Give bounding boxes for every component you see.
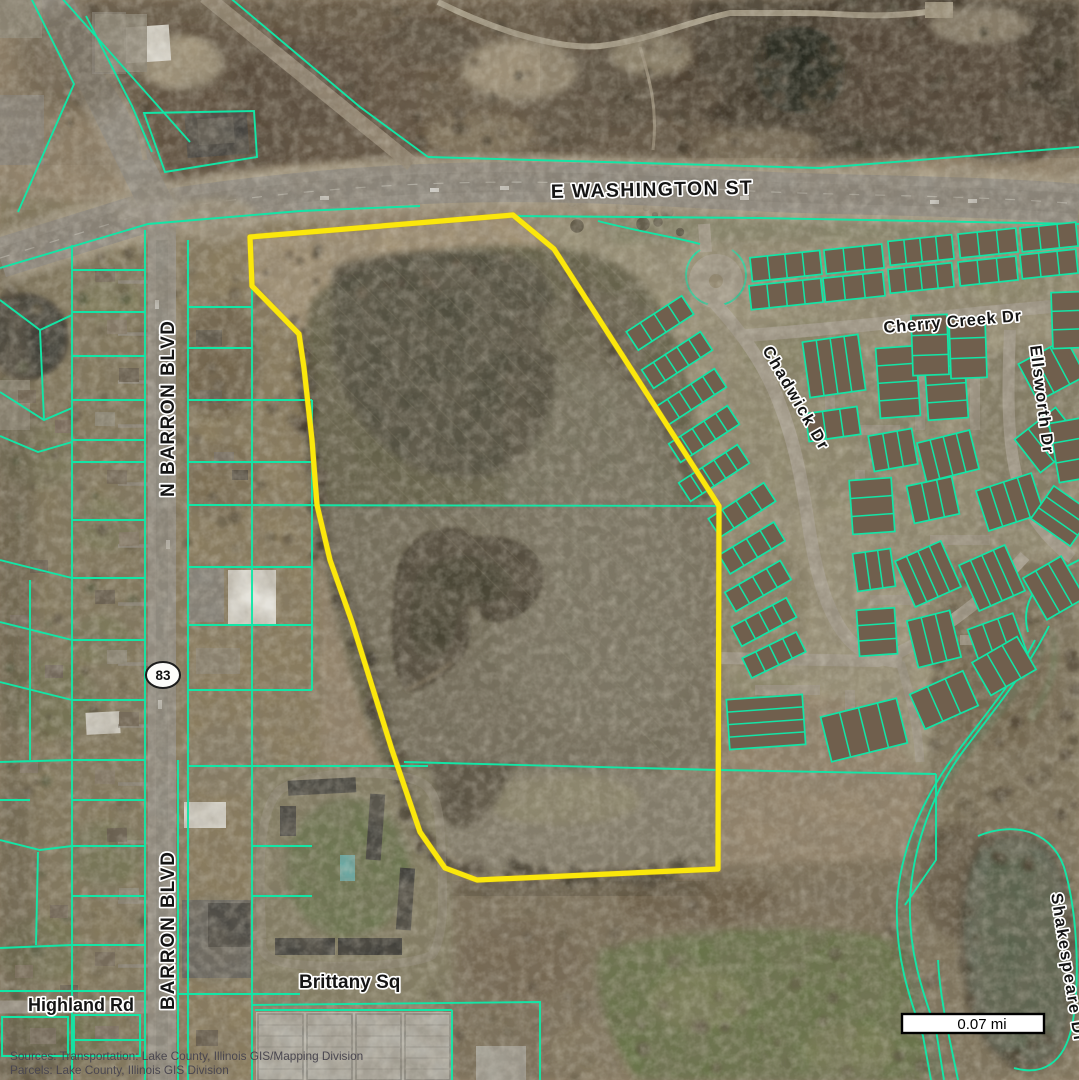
svg-text:Parcels: Lake County, Illinois: Parcels: Lake County, Illinois GIS Divis… [10, 1063, 229, 1077]
svg-text:Brittany Sq: Brittany Sq [299, 972, 400, 993]
svg-text:E WASHINGTON ST: E WASHINGTON ST [551, 177, 752, 203]
svg-text:83: 83 [155, 668, 171, 683]
svg-text:BARRON BLVD: BARRON BLVD [158, 852, 179, 1010]
svg-text:Sources: Transportation: Lake: Sources: Transportation: Lake County, Il… [10, 1049, 363, 1063]
svg-text:Highland Rd: Highland Rd [28, 995, 134, 1015]
svg-text:0.07 mi: 0.07 mi [957, 1016, 1006, 1033]
svg-text:N BARRON BLVD: N BARRON BLVD [158, 321, 179, 497]
